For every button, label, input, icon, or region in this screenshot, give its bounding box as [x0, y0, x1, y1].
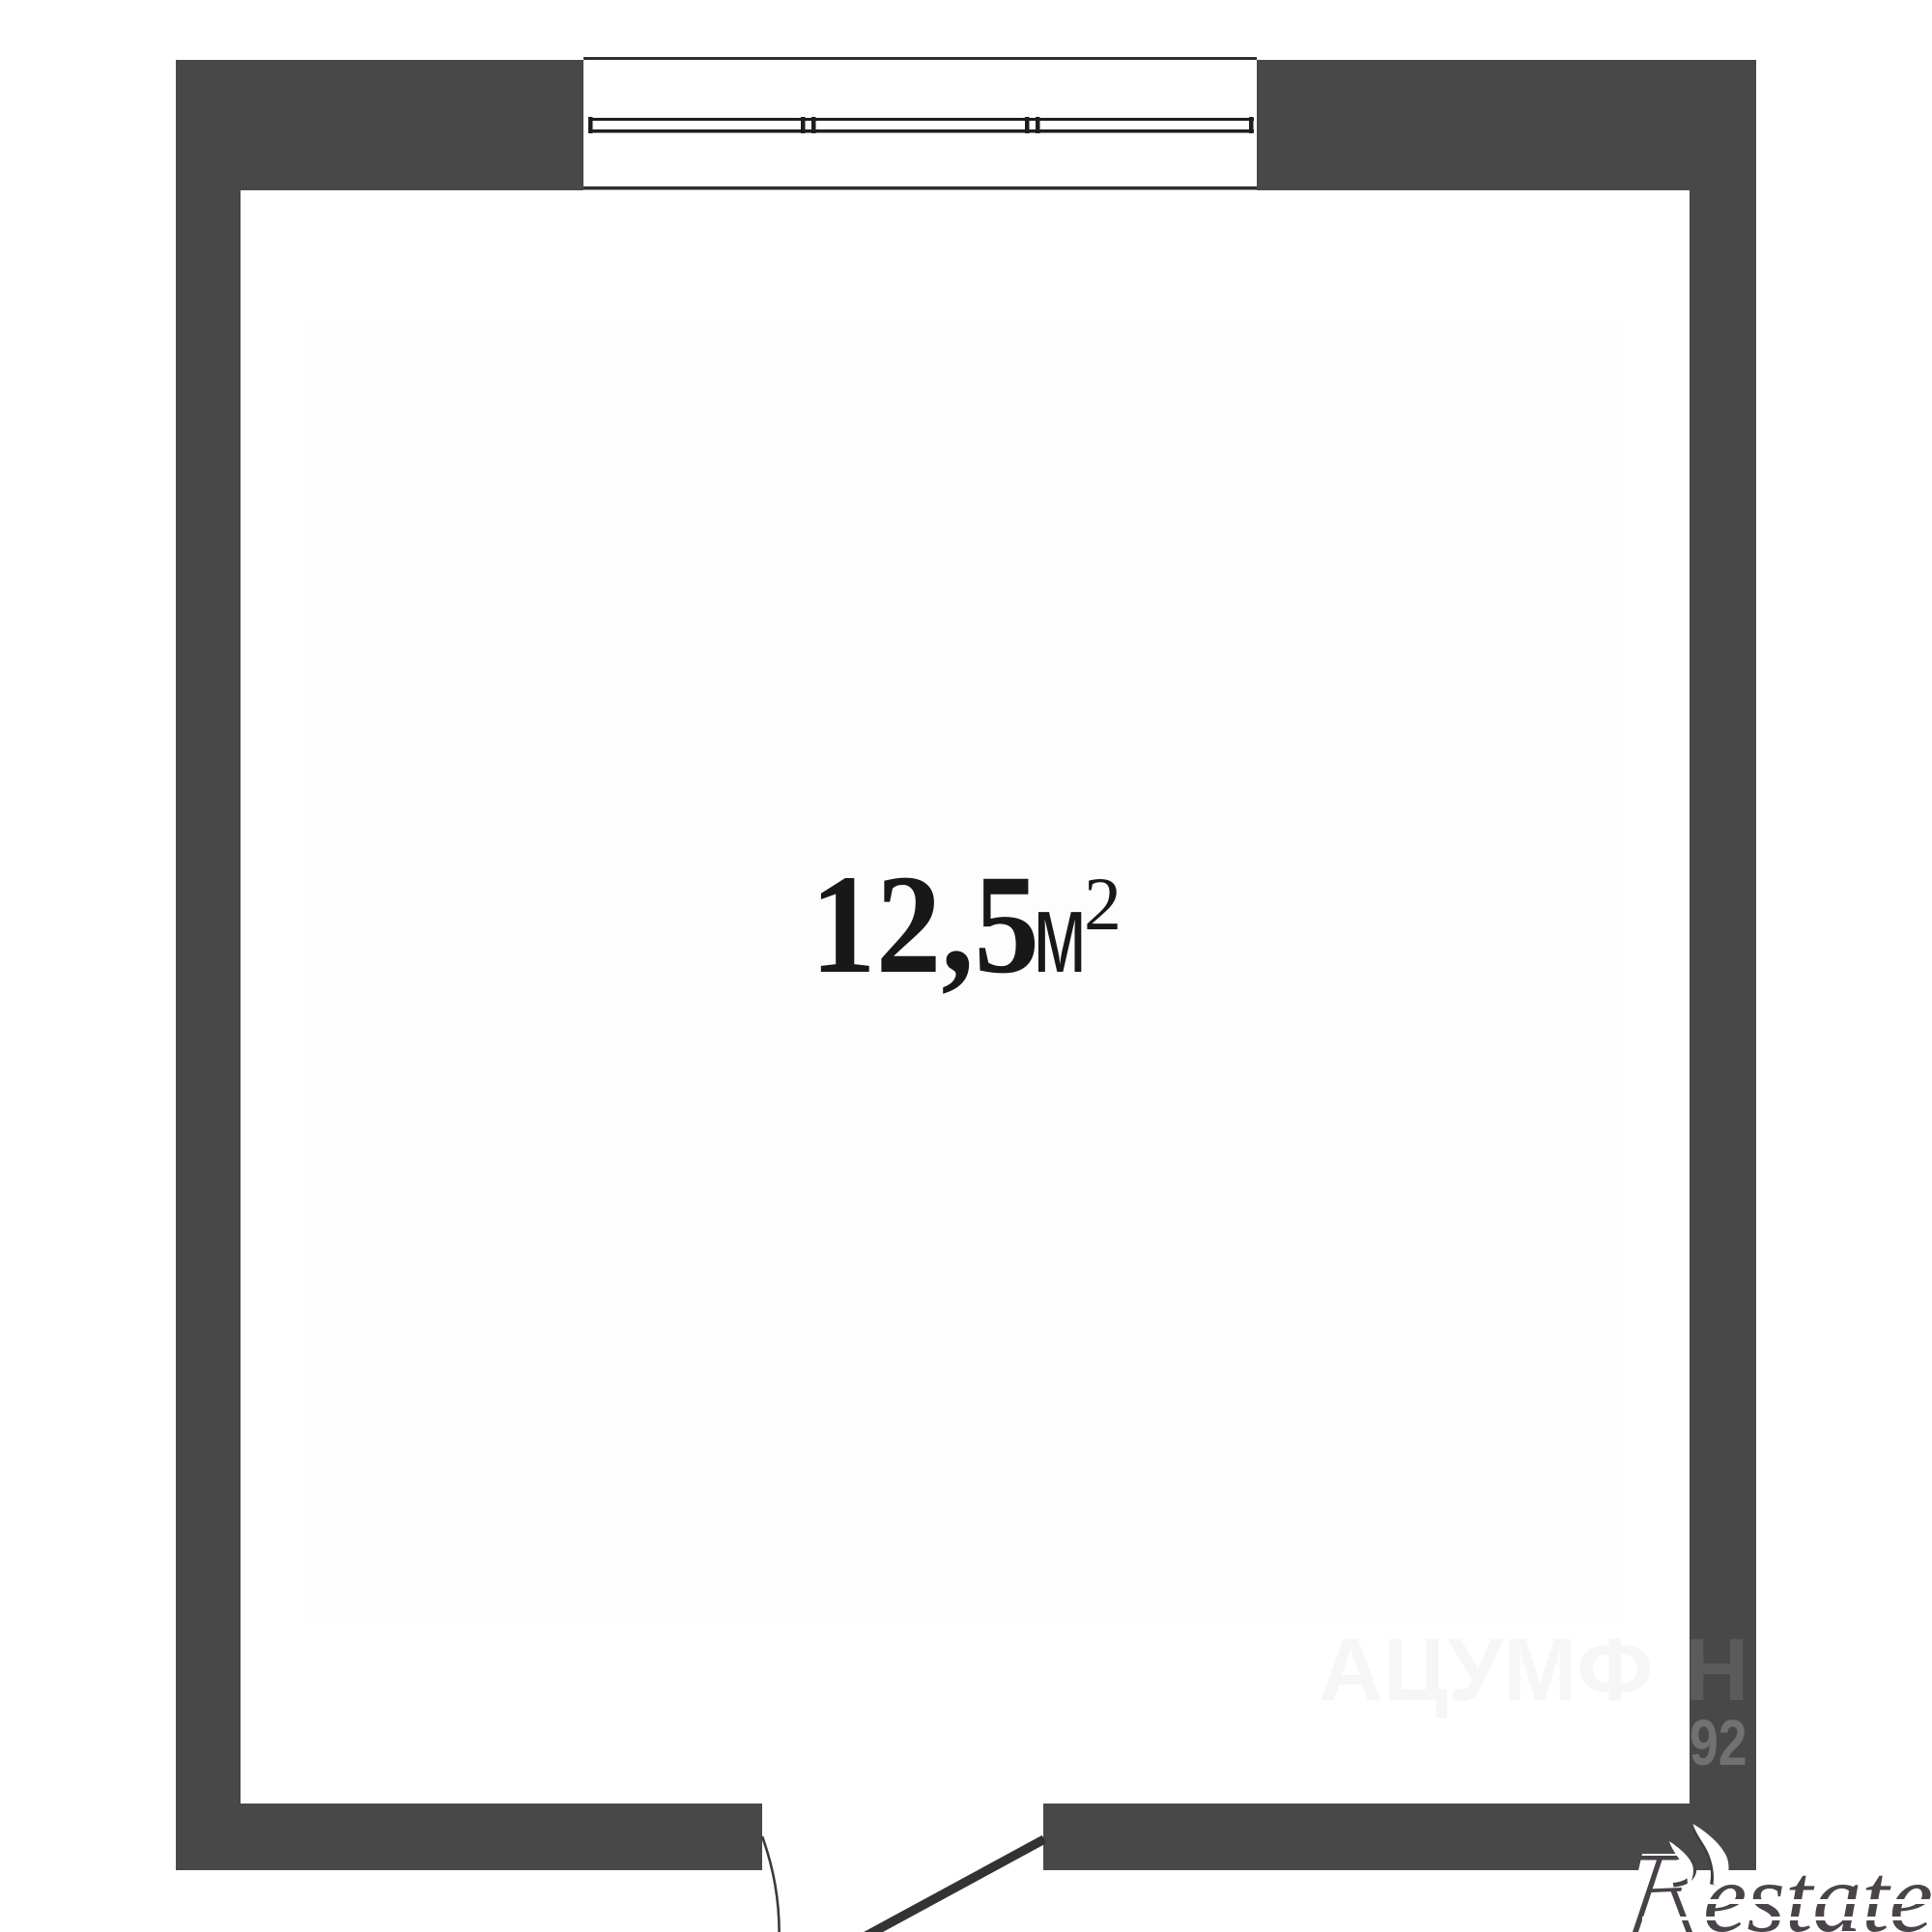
- svg-text:2: 2: [1084, 862, 1122, 946]
- svg-text:Н: Н: [1685, 1621, 1748, 1719]
- svg-text:92: 92: [1690, 1706, 1747, 1778]
- svg-text:м: м: [1033, 870, 1086, 996]
- svg-text:12,5: 12,5: [810, 845, 1039, 1003]
- svg-text:АЦУМФ: АЦУМФ: [1319, 1621, 1653, 1719]
